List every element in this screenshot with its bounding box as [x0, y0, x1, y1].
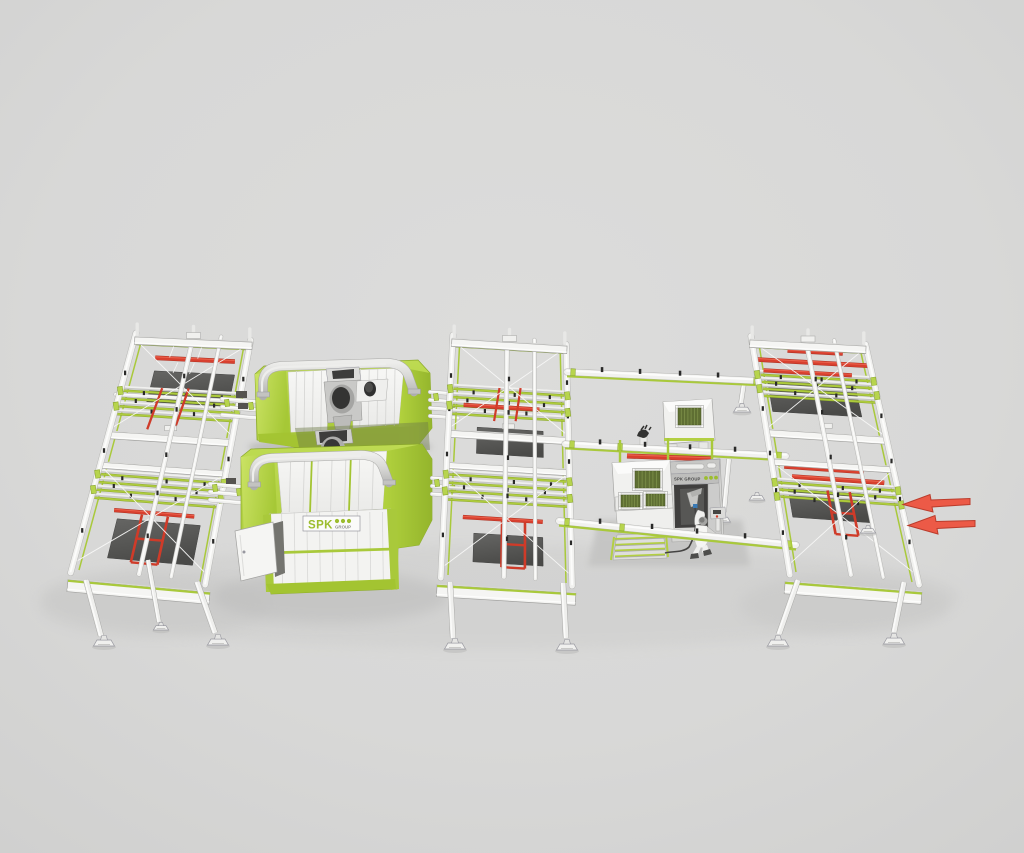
svg-text:SPK GROUP: SPK GROUP	[674, 477, 701, 482]
svg-text:SPK: SPK	[308, 520, 333, 532]
svg-text:GROUP: GROUP	[335, 525, 351, 530]
